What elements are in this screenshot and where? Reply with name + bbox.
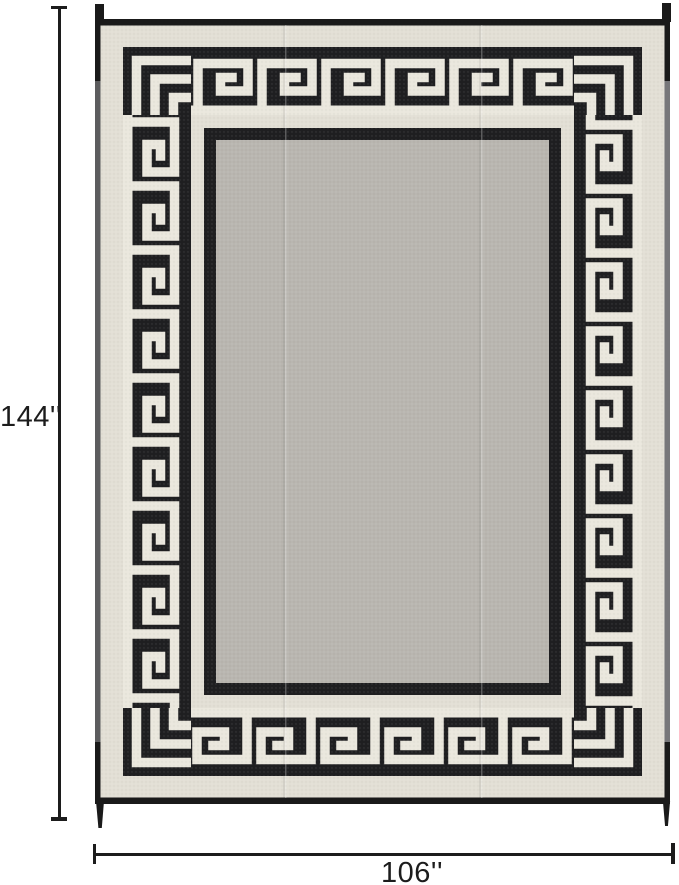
width-dimension-cap-left (93, 844, 96, 864)
height-dimension-cap-bottom (51, 817, 67, 821)
height-dimension-label: 144'' (0, 402, 53, 432)
corner-loop-bottom-left (95, 801, 105, 828)
height-dimension-cap-top (51, 6, 67, 9)
width-dimension-label: 106'' (347, 858, 477, 885)
width-dimension-line (94, 853, 674, 856)
product-image-canvas: 144'' 106'' (0, 0, 679, 885)
corner-loop-bottom-right (662, 801, 671, 826)
rug-image (95, 19, 670, 804)
rug-pattern-graphic (95, 19, 670, 804)
width-dimension-cap-right (671, 843, 675, 864)
